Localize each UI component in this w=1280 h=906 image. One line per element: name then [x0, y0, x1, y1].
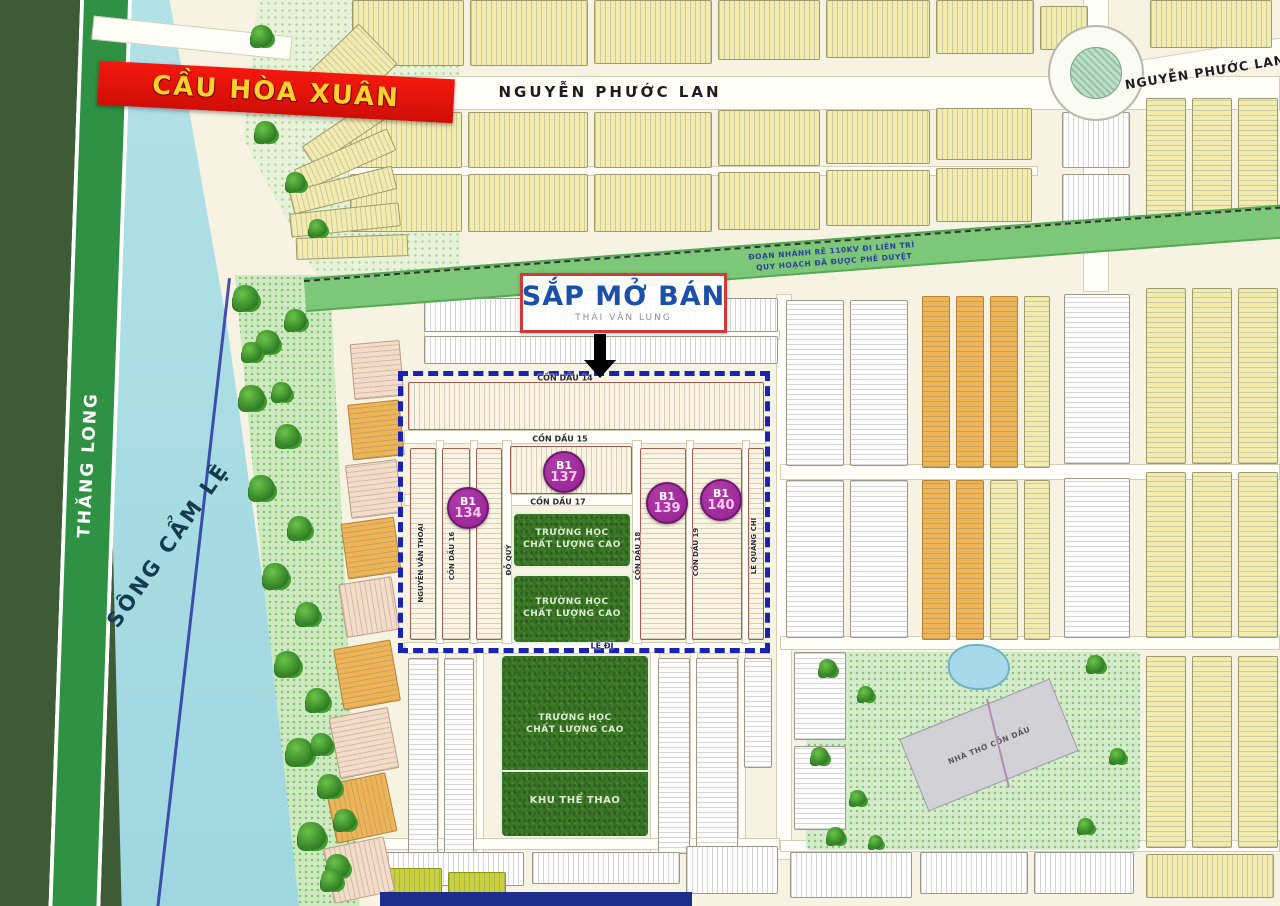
tree-icon: [334, 809, 356, 831]
parcel-block: [658, 658, 690, 854]
down-arrow-icon: [584, 360, 616, 378]
tree-icon: [296, 602, 320, 626]
parcel-block: [1146, 854, 1274, 898]
street-segment: [476, 652, 484, 860]
school-label: CHẤT LƯỢNG CAO: [523, 609, 621, 619]
parcel-block: [1024, 296, 1050, 468]
parcel-block: [468, 112, 588, 168]
parcel-block: [296, 234, 409, 260]
school-label: TRƯỜNG HỌC: [535, 597, 608, 607]
parcel-block: [686, 846, 778, 894]
tree-icon: [827, 827, 845, 845]
parcel-block: [1024, 480, 1050, 640]
parcel-block: [1146, 472, 1186, 638]
street-label-con-dau-18: CỒN DẦU 18: [634, 532, 642, 580]
street-label-con-dau-16: CỒN DẦU 16: [448, 532, 456, 580]
tree-icon: [869, 835, 883, 849]
tree-icon: [276, 424, 300, 448]
parcel-block: [826, 170, 930, 226]
street-label-le-di: LÊ ĐĨ: [590, 642, 613, 651]
parcel-block: [594, 174, 712, 232]
down-arrow-icon: [594, 334, 606, 360]
school-label: TRƯỜNG HỌC: [538, 713, 611, 723]
tree-icon: [263, 563, 289, 589]
parcel-block: [329, 707, 400, 779]
parcel-block: [718, 172, 820, 230]
parcel-block: [1146, 656, 1186, 848]
parcel-block: [1064, 478, 1130, 638]
tree-icon: [255, 121, 277, 143]
tree-icon: [239, 385, 265, 411]
parcel-block: [990, 480, 1018, 640]
parcel-block: [532, 852, 680, 884]
parcel-block: [956, 296, 984, 468]
school-area-2: TRƯỜNG HỌC CHẤT LƯỢNG CAO: [512, 574, 632, 644]
parcel-block: [1238, 656, 1278, 848]
area-divider: [502, 770, 648, 772]
parcel-block: [936, 108, 1032, 160]
parcel-block: [1192, 656, 1232, 848]
parcel-block: [786, 480, 844, 638]
parcel-block: [350, 340, 405, 400]
parcel-block: [956, 480, 984, 640]
tree-icon: [1110, 748, 1126, 764]
parcel-block: [744, 658, 772, 768]
street-label-con-dau-15: CỒN DẦU 15: [532, 435, 587, 444]
tree-icon: [251, 25, 273, 47]
parcel-block: [408, 658, 438, 856]
parcel-block: [345, 459, 403, 519]
parcel-block: [786, 300, 844, 466]
badge-block-number: 134: [454, 507, 481, 520]
roundabout-island: [1070, 47, 1122, 99]
bridge-banner-label: CẦU HÒA XUÂN: [151, 71, 400, 114]
parcel-block: [936, 168, 1032, 222]
street-label-nguyen-phuoc-lan: NGUYỄN PHƯỚC LAN: [498, 83, 721, 101]
school-sport-area: TRƯỜNG HỌC CHẤT LƯỢNG CAO KHU THỂ THAO: [500, 654, 650, 838]
tree-icon: [233, 285, 259, 311]
church-label: NHÀ THỜ CỒN DẦU: [947, 724, 1032, 765]
parcel-block: [826, 110, 930, 164]
tree-icon: [1087, 655, 1105, 673]
badge-block-number: 139: [653, 502, 680, 515]
street-label-thai-van-lung: THÁI VĂN LUNG: [575, 313, 672, 323]
street-label-nguyen-van-thoai: NGUYỄN VĂN THOẠI: [417, 523, 425, 602]
block-badge-b1-140[interactable]: B1 140: [700, 479, 742, 521]
parcel-block: [990, 296, 1018, 468]
school-label: TRƯỜNG HỌC: [535, 528, 608, 538]
block-badge-b1-139[interactable]: B1 139: [646, 482, 688, 524]
tree-icon: [850, 790, 866, 806]
parcel-block: [936, 0, 1034, 54]
parcel-block: [920, 852, 1028, 894]
parcel-block: [333, 639, 401, 710]
tree-icon: [311, 733, 333, 755]
street-label-con-dau-19: CỒN DẦU 19: [692, 528, 700, 576]
school-label: CHẤT LƯỢNG CAO: [523, 540, 621, 550]
parcel-block: [468, 174, 588, 232]
parcel-block: [1064, 294, 1130, 464]
tree-icon: [286, 738, 314, 766]
parcel-block: [718, 110, 820, 166]
parcel-block: [696, 658, 738, 854]
parcel-block: [718, 0, 820, 60]
tree-icon: [298, 822, 326, 850]
street-label-do-quy: ĐỖ QUÝ: [505, 545, 513, 576]
tree-icon: [819, 659, 837, 677]
parcel-block: [1146, 288, 1186, 464]
badge-block-number: 137: [550, 471, 577, 484]
tree-icon: [321, 869, 343, 891]
tree-icon: [272, 382, 292, 402]
map-edge-band: [380, 892, 692, 906]
tree-icon: [249, 475, 275, 501]
tree-icon: [288, 516, 312, 540]
school-label: CHẤT LƯỢNG CAO: [526, 725, 624, 735]
street-label-con-dau-17: CỒN DẦU 17: [530, 498, 585, 507]
parcel-block: [347, 399, 405, 460]
parcel-block: [850, 480, 908, 638]
parcel-block: [340, 517, 401, 580]
parcel-block: [1034, 852, 1134, 894]
street-label-le-quang-chi: LÊ QUẢNG CHÍ: [750, 518, 758, 574]
parcel-block: [1238, 288, 1278, 464]
parcel-block: [1238, 472, 1278, 638]
tree-icon: [858, 686, 874, 702]
parcel-block: [1192, 472, 1232, 638]
coming-soon-label: SẮP MỞ BÁN: [522, 283, 725, 310]
tree-icon: [285, 309, 307, 331]
block-badge-b1-137[interactable]: B1 137: [543, 451, 585, 493]
sport-area-label: KHU THỂ THAO: [530, 794, 621, 807]
tree-icon: [811, 747, 829, 765]
school-area-1: TRƯỜNG HỌC CHẤT LƯỢNG CAO: [512, 512, 632, 568]
parcel-block: [790, 852, 912, 898]
parcel-block: [594, 0, 712, 64]
coming-soon-callout[interactable]: SẮP MỞ BÁN THÁI VĂN LUNG: [520, 273, 727, 333]
parcel-block: [922, 480, 950, 640]
parcel-block: [470, 0, 588, 66]
tree-icon: [286, 172, 306, 192]
tree-icon: [242, 342, 262, 362]
tree-icon: [309, 219, 327, 237]
pond: [948, 644, 1010, 690]
parcel-block: [850, 300, 908, 466]
master-plan-map: ĐOẠN NHÁNH RẼ 110KV ĐI LIÊN TRÌ QUY HOẠC…: [0, 0, 1280, 906]
parcel-block: [594, 112, 712, 168]
parcel-block: [1192, 288, 1232, 464]
block-badge-b1-134[interactable]: B1 134: [447, 487, 489, 529]
parcel-block: [922, 296, 950, 468]
tree-icon: [318, 774, 342, 798]
tree-icon: [306, 688, 330, 712]
parcel-block: [826, 0, 930, 58]
tree-icon: [1078, 818, 1094, 834]
parcel-block: [338, 576, 400, 638]
tree-icon: [275, 651, 301, 677]
badge-block-number: 140: [707, 499, 734, 512]
parcel-block: [1150, 0, 1272, 48]
parcel-block: [444, 658, 474, 856]
